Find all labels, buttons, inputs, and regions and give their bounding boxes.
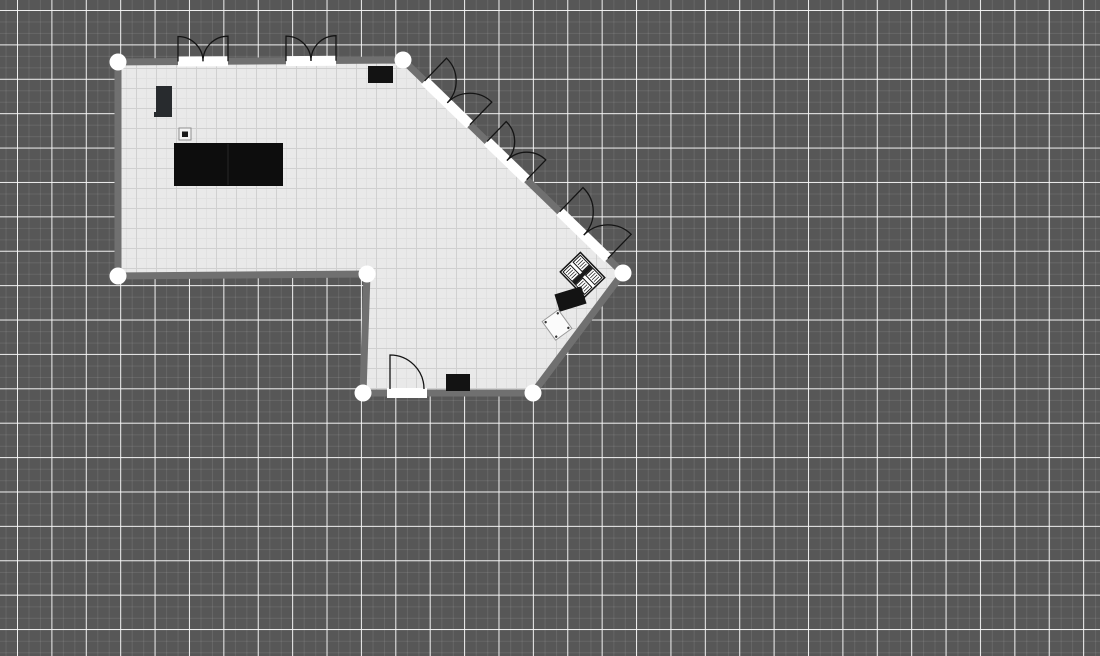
box-top-right[interactable] [368, 66, 393, 83]
vertex-handle[interactable] [110, 54, 127, 71]
vertex-handle[interactable] [110, 268, 127, 285]
table-large[interactable] [174, 143, 283, 186]
vertex-handle[interactable] [395, 52, 412, 69]
vertex-handle[interactable] [615, 265, 632, 282]
box-bottom[interactable] [446, 374, 470, 391]
wardrobe[interactable] [154, 86, 172, 117]
floor-plan-canvas[interactable] [0, 0, 1100, 656]
floor-plan-svg[interactable] [0, 0, 1100, 656]
vertex-handle[interactable] [359, 266, 376, 283]
vertex-handle[interactable] [355, 385, 372, 402]
vertex-handle[interactable] [525, 385, 542, 402]
small-appliance[interactable] [179, 128, 191, 140]
room-floor[interactable] [118, 60, 623, 393]
